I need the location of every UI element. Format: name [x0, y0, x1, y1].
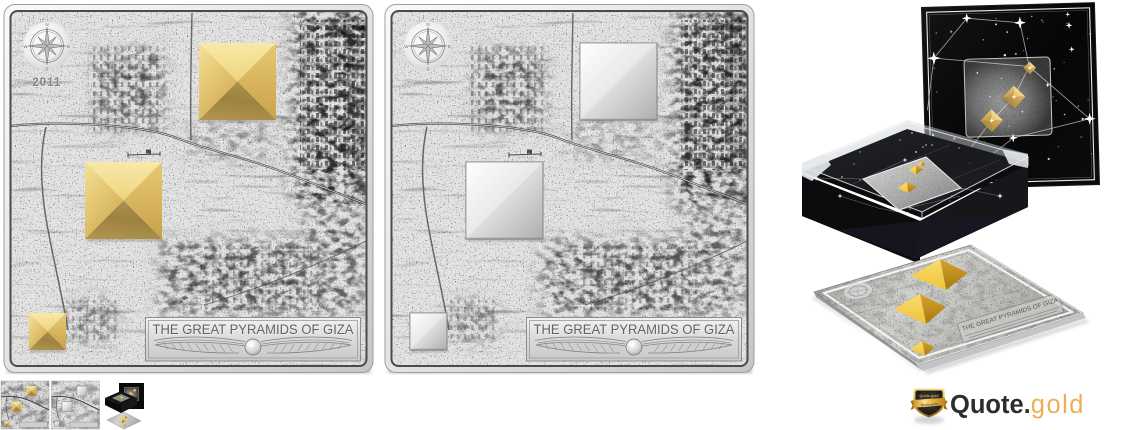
svg-text:2011: 2011	[33, 77, 62, 89]
svg-text:THE GREAT PYRAMIDS OF GIZA: THE GREAT PYRAMIDS OF GIZA	[534, 321, 736, 337]
svg-text:E: E	[448, 44, 451, 49]
svg-text:THE GREAT PYRAMIDS OF GIZA: THE GREAT PYRAMIDS OF GIZA	[153, 321, 355, 337]
svg-text:Quote.gold: Quote.gold	[950, 391, 1085, 419]
svg-text:Quote.gold: Quote.gold	[920, 394, 939, 398]
svg-text:S: S	[45, 67, 48, 72]
svg-text:S: S	[426, 67, 429, 72]
svg-text:E: E	[67, 44, 70, 49]
svg-text:N: N	[45, 22, 48, 27]
svg-text:N: N	[426, 22, 429, 27]
